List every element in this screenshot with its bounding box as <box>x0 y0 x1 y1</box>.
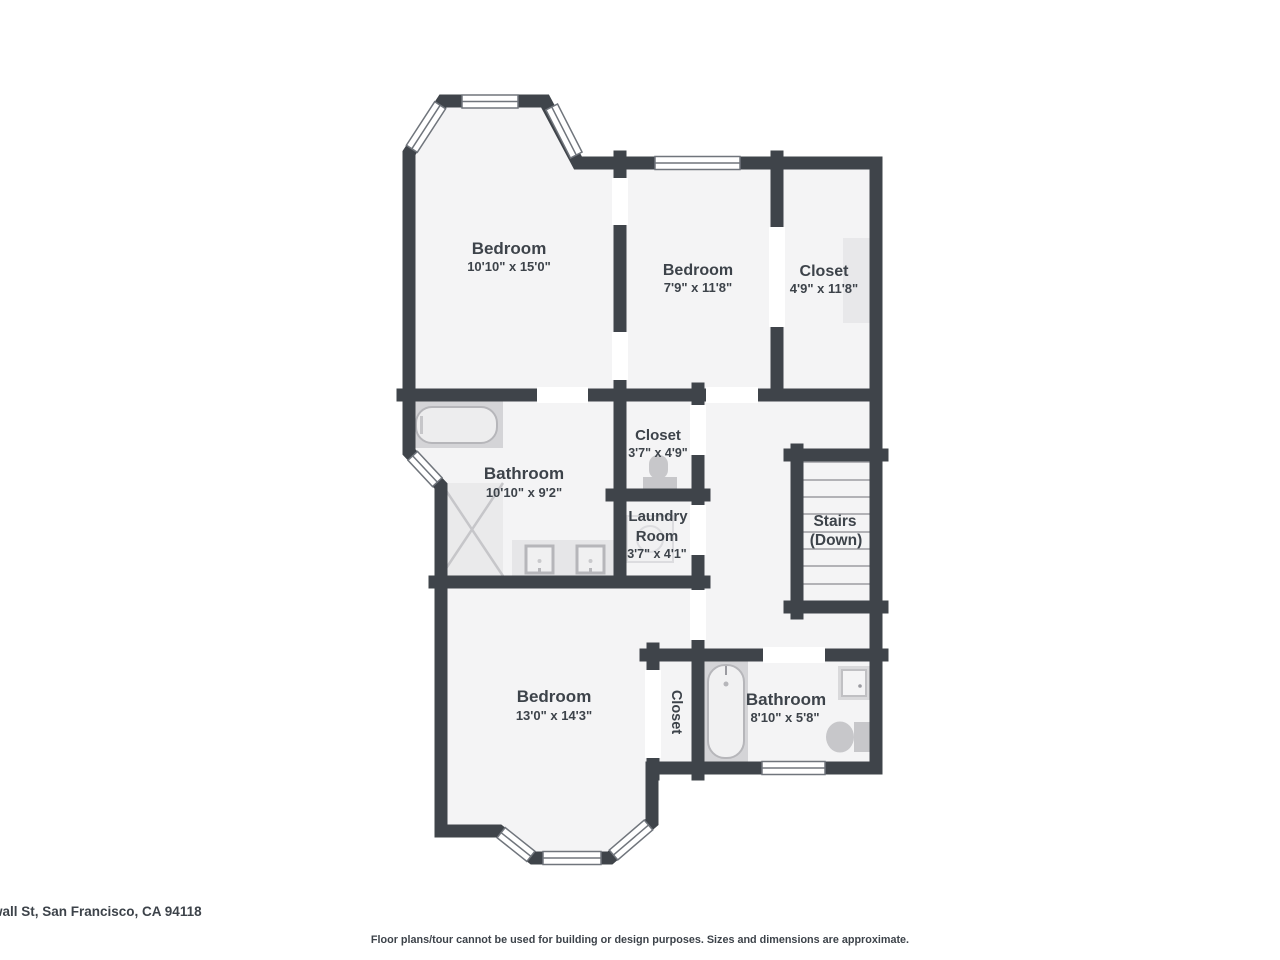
door-opening <box>612 178 628 225</box>
room-name: Closet <box>668 690 684 734</box>
room-dims: 13'0" x 14'3" <box>516 708 592 723</box>
room-name: Closet <box>635 427 681 444</box>
room-dims: 3'7" x 4'1" <box>627 547 687 561</box>
door-opening <box>763 647 825 663</box>
room-label-closet-toilet: Closet 3'7" x 4'9" <box>628 427 688 460</box>
room-label-bathroom-main: Bathroom 10'10" x 9'2" <box>484 464 564 500</box>
room-name: Closet <box>800 263 850 280</box>
stairs-label-line2: (Down) <box>810 532 863 549</box>
window-icon <box>543 852 601 865</box>
door-opening <box>706 387 758 403</box>
room-dims: 10'10" x 15'0" <box>467 259 551 274</box>
room-label-bedroom-bottom: Bedroom 13'0" x 14'3" <box>516 687 592 723</box>
room-name-line2: Room <box>636 528 679 545</box>
bathtub-second-icon <box>704 661 748 762</box>
door-opening <box>690 405 706 455</box>
window-icon <box>462 95 518 108</box>
room-name: Bathroom <box>484 464 564 483</box>
door-opening <box>612 332 628 380</box>
floor-plan-page: Bedroom 10'10" x 15'0" Bedroom 7'9" x 11… <box>0 0 1280 960</box>
room-dims: 8'10" x 5'8" <box>750 710 819 725</box>
door-opening <box>690 505 706 555</box>
room-label-bathroom-second: Bathroom 8'10" x 5'8" <box>746 690 826 725</box>
room-name: Bedroom <box>517 687 592 706</box>
bathtub-icon <box>409 401 503 448</box>
room-dims: 10'10" x 9'2" <box>486 485 562 500</box>
sink-second-icon <box>838 666 870 700</box>
toilet-second-icon <box>826 722 870 753</box>
window-icon <box>762 762 825 775</box>
room-dims: 4'9" x 11'8" <box>790 281 858 296</box>
double-vanity-sink-icon <box>512 540 618 576</box>
room-label-closet-bottom: Closet <box>668 690 684 734</box>
room-name: Bedroom <box>663 262 733 279</box>
room-dims: 3'7" x 4'9" <box>628 446 688 460</box>
room-name: Bathroom <box>746 690 826 709</box>
door-opening <box>537 387 588 403</box>
address-text: wall St, San Francisco, CA 94118 <box>0 904 202 919</box>
room-name: Bedroom <box>472 239 547 258</box>
door-opening <box>690 590 706 640</box>
room-name-line1: Laundry <box>628 508 688 525</box>
door-opening <box>769 227 785 327</box>
door-opening <box>645 670 661 758</box>
window-icon <box>655 157 740 170</box>
room-label-bedroom-top-middle: Bedroom 7'9" x 11'8" <box>663 262 733 295</box>
room-dims: 7'9" x 11'8" <box>664 280 732 295</box>
floor-plan: Bedroom 10'10" x 15'0" Bedroom 7'9" x 11… <box>0 0 1280 960</box>
room-label-closet-top-right: Closet 4'9" x 11'8" <box>790 263 858 296</box>
stairs-label-line1: Stairs <box>813 513 856 530</box>
room-label-bedroom-top-left: Bedroom 10'10" x 15'0" <box>467 239 551 274</box>
disclaimer-text: Floor plans/tour cannot be used for buil… <box>371 934 909 946</box>
